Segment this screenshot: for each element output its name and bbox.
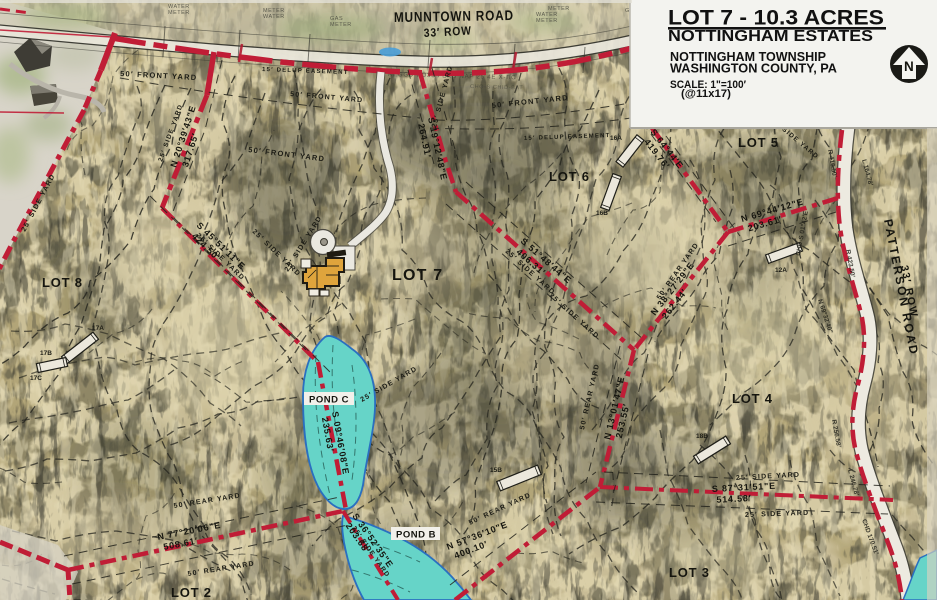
svg-text:514.58′: 514.58′ <box>716 493 752 505</box>
svg-text:LOT 7: LOT 7 <box>392 267 443 284</box>
svg-text:17C: 17C <box>30 375 42 382</box>
svg-text:18B: 18B <box>696 433 708 440</box>
svg-text:LOT 7 - 10.3 ACRES: LOT 7 - 10.3 ACRES <box>668 7 884 30</box>
svg-text:METER: METER <box>536 18 558 24</box>
svg-text:15B: 15B <box>490 467 502 474</box>
svg-text:LOT 8: LOT 8 <box>42 275 83 290</box>
svg-text:POND C: POND C <box>309 395 349 406</box>
svg-text:METER: METER <box>330 22 352 28</box>
svg-text:N: N <box>904 59 914 74</box>
svg-text:METER: METER <box>168 10 190 16</box>
svg-text:17B: 17B <box>40 350 52 357</box>
svg-text:(@11x17): (@11x17) <box>681 88 731 100</box>
svg-text:16B: 16B <box>596 210 608 217</box>
svg-text:WATER: WATER <box>263 14 285 20</box>
svg-text:LOT 4: LOT 4 <box>732 391 773 406</box>
svg-text:LOT 3: LOT 3 <box>669 565 710 580</box>
svg-text:WASHINGTON COUNTY, PA: WASHINGTON COUNTY, PA <box>670 61 838 76</box>
svg-text:33′ ROW: 33′ ROW <box>423 24 472 40</box>
svg-text:17A: 17A <box>92 325 104 332</box>
svg-text:LOT 2: LOT 2 <box>171 585 212 600</box>
svg-text:16A: 16A <box>610 135 622 142</box>
svg-text:NOTTINGHAM ESTATES: NOTTINGHAM ESTATES <box>668 28 873 45</box>
svg-text:LOT 6: LOT 6 <box>549 169 590 184</box>
svg-text:12A: 12A <box>775 267 787 274</box>
svg-text:LOT 5: LOT 5 <box>738 135 779 150</box>
svg-text:MUNNTOWN ROAD: MUNNTOWN ROAD <box>394 7 514 25</box>
svg-text:POND B: POND B <box>396 530 436 541</box>
